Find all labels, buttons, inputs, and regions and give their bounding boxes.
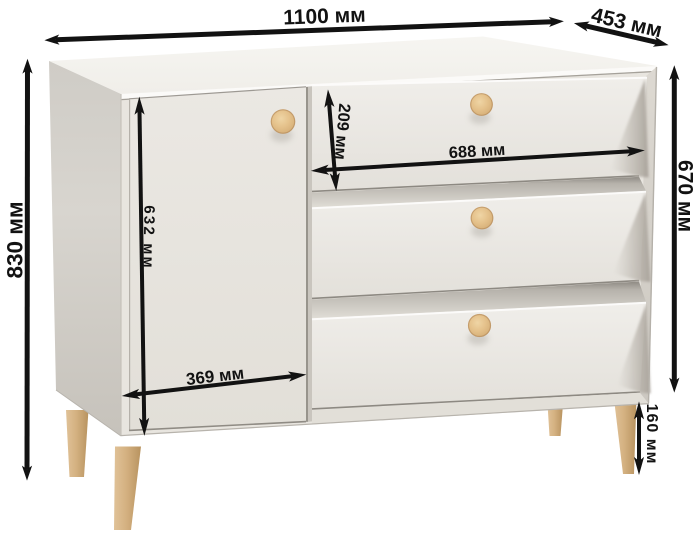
svg-text:670 мм: 670 мм: [674, 160, 697, 232]
svg-text:632 мм: 632 мм: [139, 205, 157, 270]
svg-text:830 мм: 830 мм: [3, 201, 28, 278]
svg-text:160 мм: 160 мм: [643, 404, 660, 465]
svg-text:688 мм: 688 мм: [448, 141, 506, 162]
svg-text:1100 мм: 1100 мм: [283, 4, 366, 30]
